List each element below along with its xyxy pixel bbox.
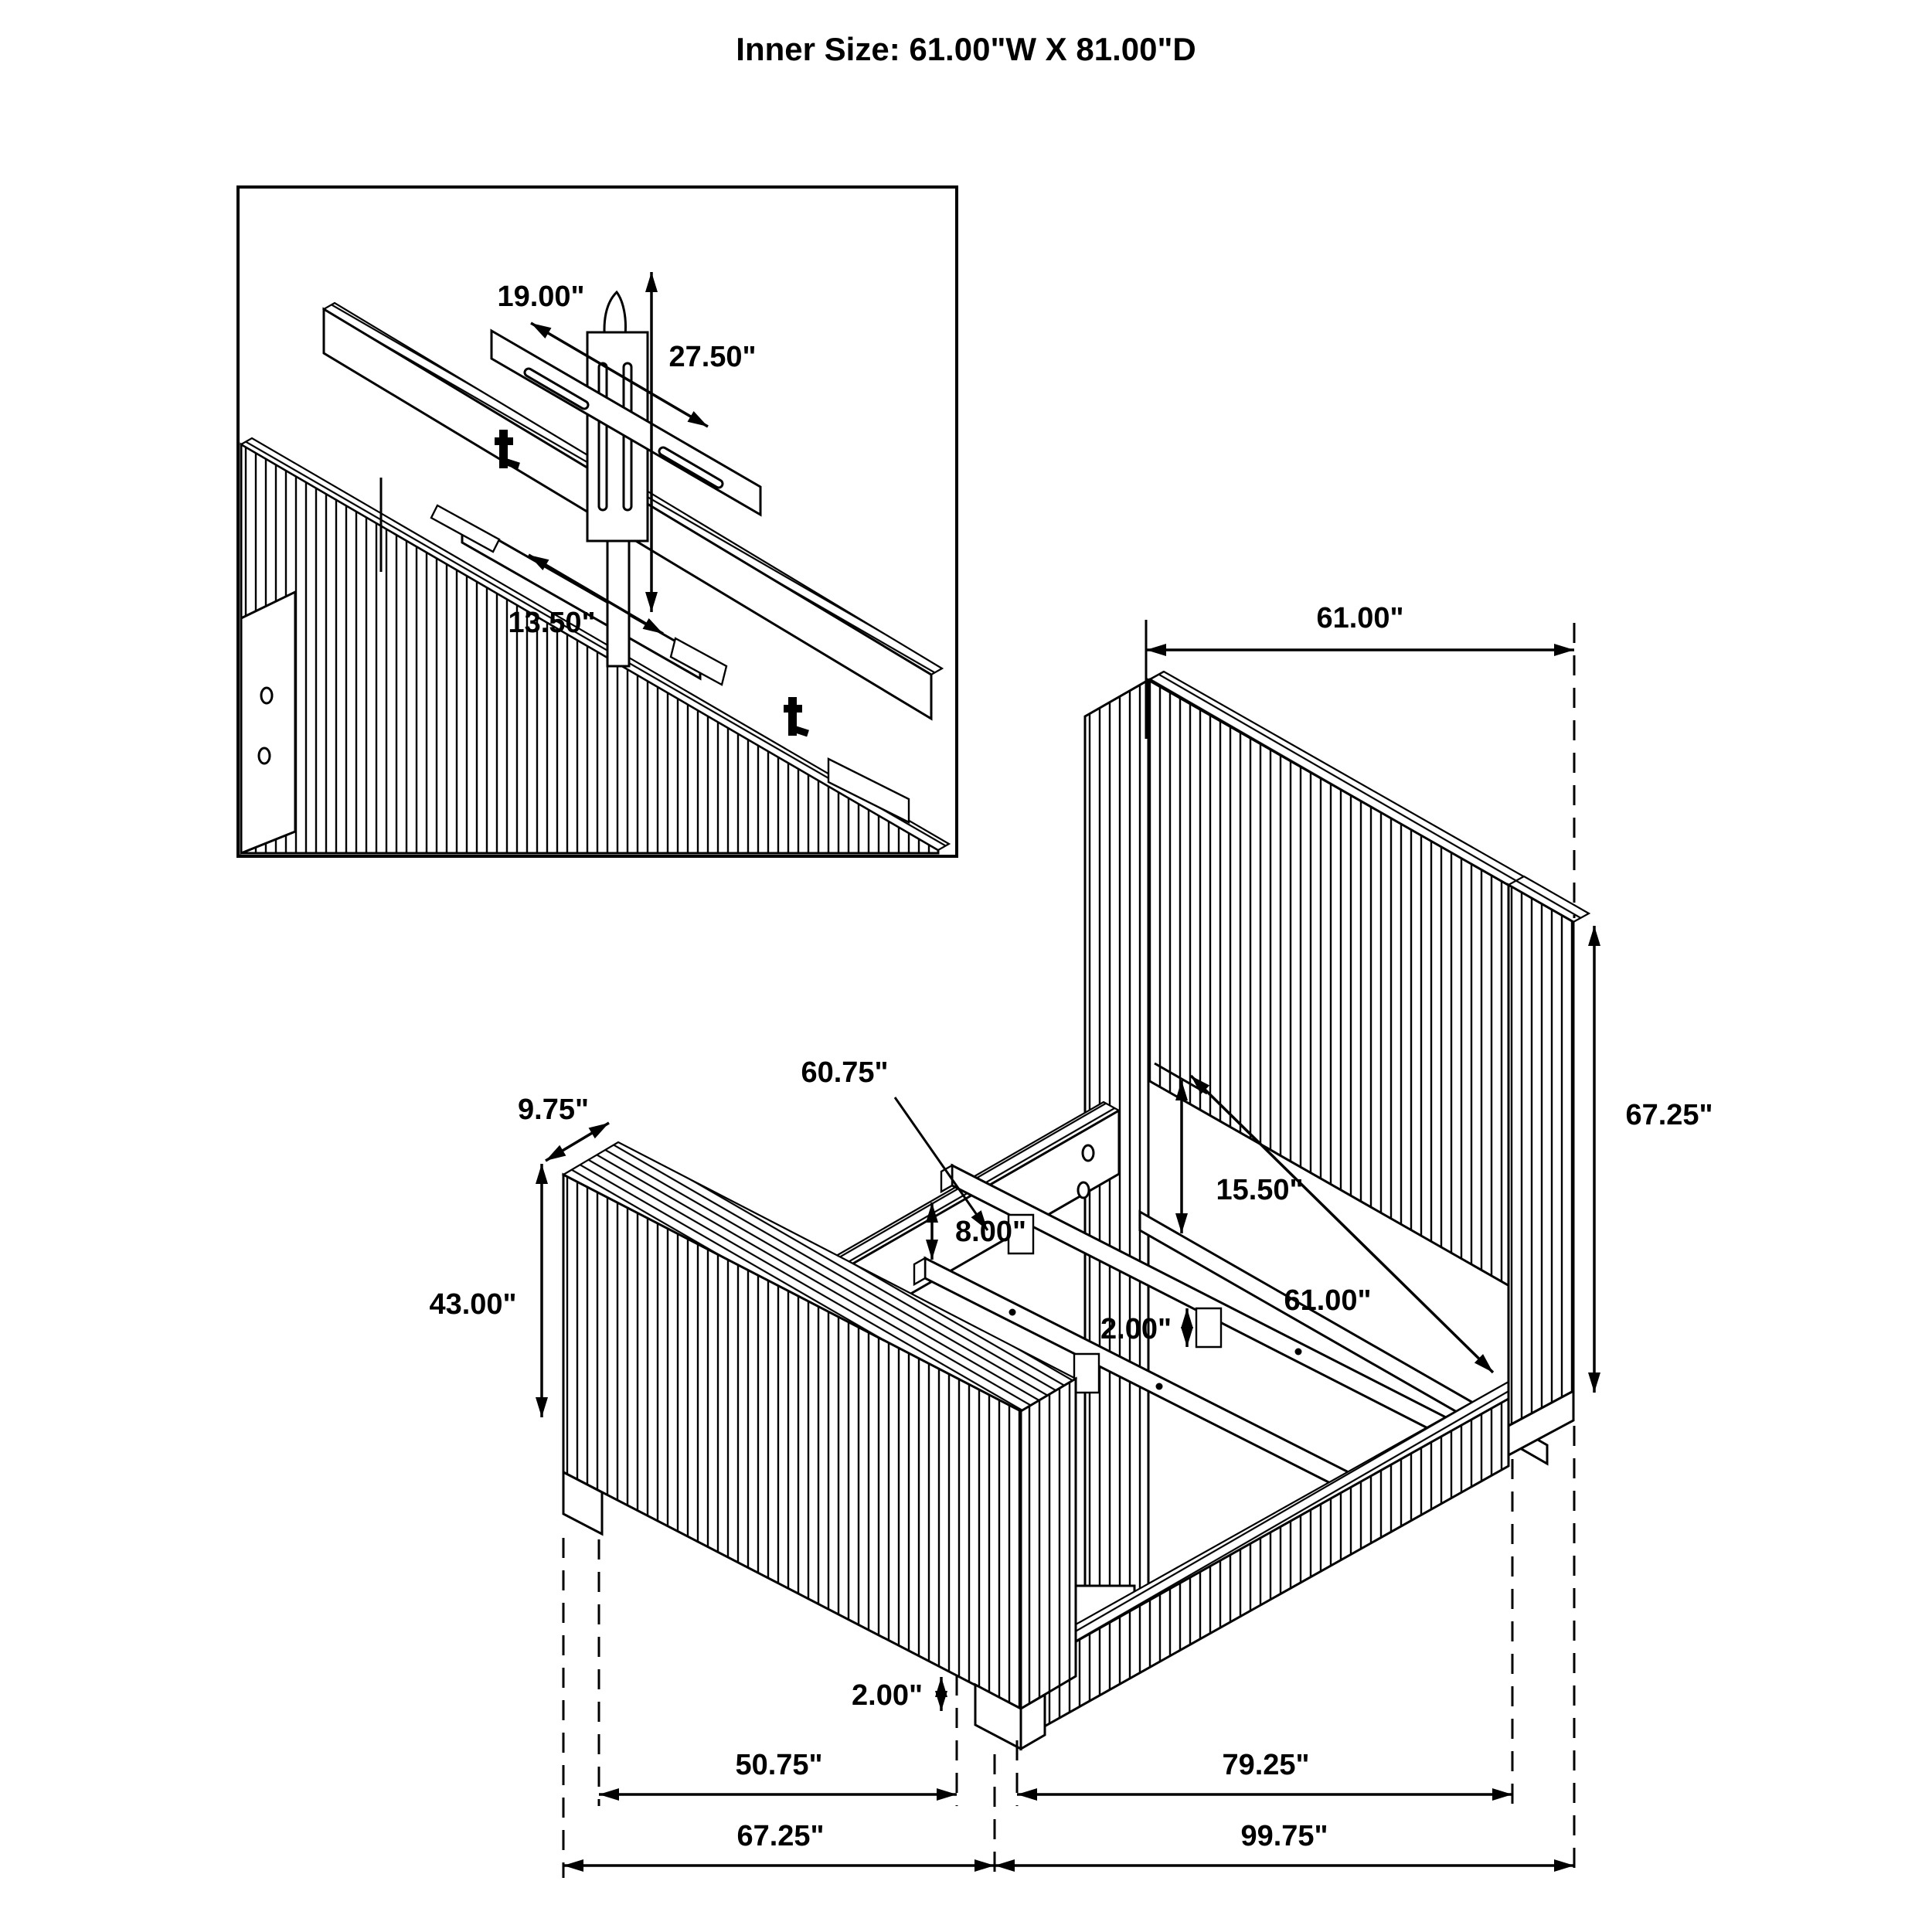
dim-label: 9.75" bbox=[518, 1094, 589, 1126]
diagram-page: Inner Size: 61.00"W X 81.00"D bbox=[0, 0, 1932, 1932]
dim-label: 2.00" bbox=[852, 1679, 923, 1712]
dim-label: 43.00" bbox=[429, 1288, 516, 1321]
dim-label: 27.50" bbox=[668, 341, 756, 373]
footboard-end-cap bbox=[1021, 1379, 1076, 1709]
dim-label: 61.00" bbox=[1284, 1284, 1371, 1317]
dim-label: 61.00" bbox=[1316, 602, 1403, 634]
dim-label: 67.25" bbox=[736, 1820, 824, 1852]
dim-label: 50.75" bbox=[735, 1749, 822, 1781]
dim-label: 13.50" bbox=[508, 607, 595, 639]
headboard-right-wing bbox=[1509, 885, 1573, 1426]
inset-rail-hole bbox=[259, 748, 270, 764]
dim-slat-leg-height: 2.00" bbox=[1100, 1308, 1187, 1347]
dim-label: 8.00" bbox=[955, 1216, 1026, 1248]
dim-label: 79.25" bbox=[1222, 1749, 1309, 1781]
dim-label: 60.75" bbox=[801, 1056, 888, 1089]
rail-hole bbox=[1078, 1182, 1089, 1198]
bed-dimension-diagram: Inner Size: 61.00"W X 81.00"D bbox=[0, 0, 1932, 1932]
dim-foot-height: 2.00" bbox=[852, 1677, 941, 1712]
screw-dot bbox=[1009, 1309, 1016, 1316]
dim-footboard-depth: 9.75" bbox=[518, 1094, 609, 1161]
dim-label: 19.00" bbox=[497, 281, 584, 313]
slat-leg bbox=[1074, 1354, 1099, 1393]
screw-dot bbox=[1295, 1349, 1302, 1355]
dim-label: 15.50" bbox=[1216, 1174, 1303, 1206]
page-title: Inner Size: 61.00"W X 81.00"D bbox=[736, 31, 1196, 67]
inset-side-rail bbox=[241, 592, 295, 853]
screw-dot bbox=[1156, 1383, 1163, 1390]
dim-label: 67.25" bbox=[1625, 1099, 1713, 1131]
dim-headboard-height: 67.25" bbox=[1594, 926, 1713, 1393]
dim-label: 2.00" bbox=[1100, 1313, 1172, 1345]
dim-label: 99.75" bbox=[1240, 1820, 1328, 1852]
slat-leg bbox=[1196, 1308, 1221, 1347]
inset-detail-view: 19.00" 27.50" 13.50" bbox=[238, 187, 957, 856]
dim-overall-depth: 67.25" bbox=[563, 1820, 995, 1866]
dim-footboard-to-leg: 50.75" bbox=[599, 1749, 957, 1794]
rail-hole bbox=[1083, 1145, 1094, 1161]
dim-overall-length: 99.75" bbox=[995, 1820, 1574, 1866]
inset-rail-hole bbox=[261, 688, 272, 703]
dim-footboard-height: 43.00" bbox=[429, 1164, 542, 1417]
dim-leg-to-headboard: 79.25" bbox=[1017, 1749, 1512, 1794]
headboard-panel bbox=[1148, 680, 1549, 1308]
